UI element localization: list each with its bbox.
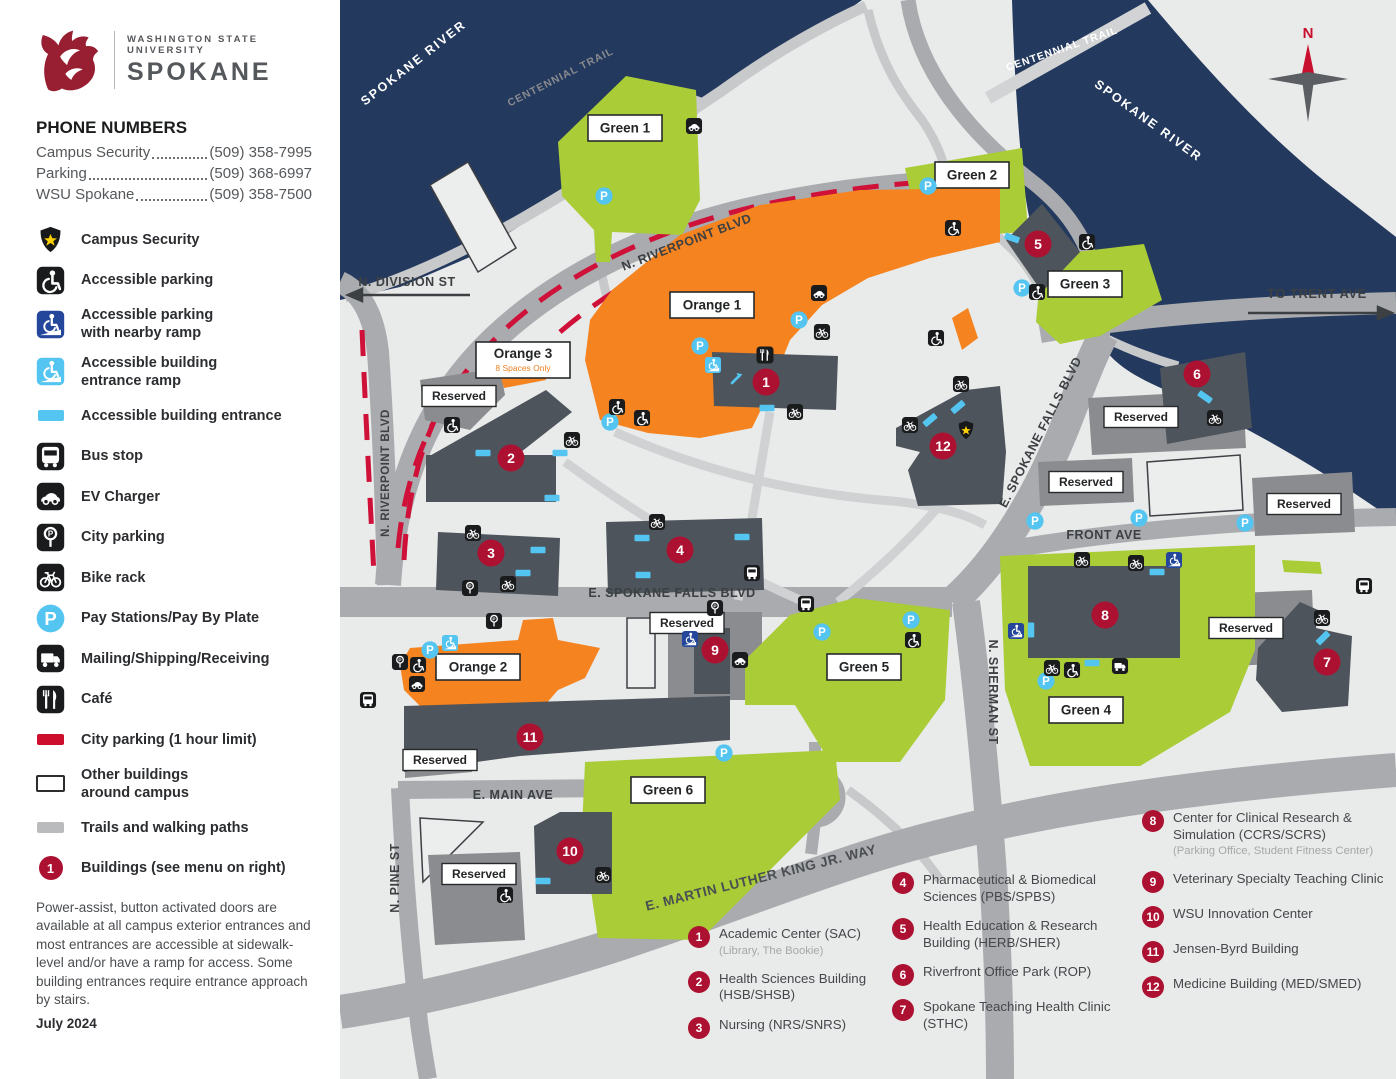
ev-icon: [36, 482, 65, 511]
accessible-icon: [945, 220, 961, 236]
accessible-entrance-icon: [545, 495, 560, 502]
bus-icon: [360, 692, 376, 708]
building-marker-number: 5: [1034, 236, 1042, 252]
legend-item: EV Charger: [36, 482, 322, 511]
legend-item: Bus stop: [36, 442, 322, 471]
wsu-spokane-campus-map-page: WASHINGTON STATE UNIVERSITY SPOKANE PHON…: [0, 0, 1396, 1079]
legend-item: Accessible parkingwith nearby ramp: [36, 306, 322, 342]
phone-entry: Campus Security(509) 358-7995: [36, 142, 312, 163]
building-menu-item: 8Center for Clinical Research & Simulati…: [1142, 810, 1390, 858]
ramp-dark-icon: [1166, 552, 1182, 568]
building-menu-item: 10WSU Innovation Center: [1142, 906, 1390, 928]
building-menu-number: 9: [1142, 871, 1164, 893]
legend-label: Buildings (see menu on right): [81, 859, 286, 877]
building-menu-column-3: 8Center for Clinical Research & Simulati…: [1142, 810, 1390, 998]
accessible-entrance-icon: [1028, 623, 1035, 638]
pay-icon: [1013, 279, 1030, 296]
chip-outline-icon: [36, 769, 65, 798]
accessible-icon: [1064, 662, 1080, 678]
building-menu-item: 7Spokane Teaching Health Clinic (STHC): [892, 999, 1120, 1032]
pay-icon: [595, 187, 612, 204]
logo-institution: WASHINGTON STATE UNIVERSITY: [127, 34, 322, 56]
building-menu-column-2: 4Pharmaceutical & Biomedical Sciences (P…: [892, 872, 1120, 1032]
lot-label: Green 3: [1060, 277, 1111, 292]
accessible-entrance-icon: [536, 878, 551, 885]
phone-number: (509) 358-7500: [209, 184, 312, 205]
legend-label: Accessible buildingentrance ramp: [81, 354, 217, 390]
accessible-icon: [497, 887, 513, 903]
accessible-icon: [634, 410, 650, 426]
entrance-icon: [36, 401, 65, 430]
phone-label: WSU Spokane: [36, 184, 134, 205]
building-menu-name: Pharmaceutical & Biomedical Sciences (PB…: [923, 872, 1120, 905]
building-menu-number: 5: [892, 918, 914, 940]
phone-number: (509) 368-6997: [209, 163, 312, 184]
sidebar: WASHINGTON STATE UNIVERSITY SPOKANE PHON…: [0, 0, 340, 1079]
cafe-icon: [36, 685, 65, 714]
road-label: N. PINE ST: [388, 843, 402, 913]
reserved-label: Reserved: [1114, 410, 1168, 424]
legend-label: Pay Stations/Pay By Plate: [81, 609, 259, 627]
building-menu-name: Academic Center (SAC): [719, 926, 861, 943]
meter-icon: [392, 654, 408, 670]
accessible-entrance-icon: [553, 450, 568, 457]
building-menu-number: 7: [892, 999, 914, 1021]
legend-item: Campus Security: [36, 225, 322, 254]
pay-icon: [813, 623, 830, 640]
badge-icon: [36, 225, 65, 254]
legend-label: Campus Security: [81, 231, 199, 249]
phone-label: Campus Security: [36, 142, 150, 163]
reserved-label: Reserved: [452, 867, 506, 881]
logo-divider: [114, 31, 115, 89]
lot-label: Green 6: [643, 783, 694, 798]
legend-item: Accessible building entrance: [36, 401, 322, 430]
pay-icon: [421, 641, 438, 658]
meter-icon: [36, 523, 65, 552]
legend-item: Accessible parking: [36, 266, 322, 295]
bike-icon: [1074, 552, 1090, 568]
logo-campus: SPOKANE: [127, 58, 322, 87]
lot-label: Orange 3: [494, 346, 553, 361]
building-marker-number: 4: [676, 542, 684, 558]
bike-icon: [36, 563, 65, 592]
bike-icon: [902, 417, 918, 433]
building-marker-number: 7: [1323, 654, 1331, 670]
legend-label: Bike rack: [81, 569, 146, 587]
truck-icon: [36, 644, 65, 673]
building-menu-name: Center for Clinical Research & Simulatio…: [1173, 810, 1390, 843]
ramp-light-icon: [442, 635, 458, 651]
building-menu-number: 10: [1142, 906, 1164, 928]
marker1-icon: 1: [36, 854, 65, 883]
road-label: E. SPOKANE FALLS BLVD: [588, 586, 755, 600]
building-menu-name: Jensen-Byrd Building: [1173, 941, 1299, 958]
building-marker-number: 12: [935, 438, 951, 454]
pay-icon: [715, 744, 732, 761]
reserved-label: Reserved: [1059, 475, 1113, 489]
pay-icon: [691, 337, 708, 354]
building-menu-number: 11: [1142, 941, 1164, 963]
accessible-icon: [609, 399, 625, 415]
building-marker-number: 1: [762, 374, 770, 390]
ev-icon: [409, 676, 425, 692]
legend-label: Accessible parking: [81, 271, 213, 289]
bike-icon: [953, 376, 969, 392]
pay-icon: [36, 604, 65, 633]
legend-label: Mailing/Shipping/Receiving: [81, 650, 270, 668]
building-menu-name: Health Sciences Building (HSB/SHSB): [719, 971, 884, 1004]
building-menu-name: WSU Innovation Center: [1173, 906, 1313, 923]
accessible-entrance-icon: [1150, 569, 1165, 576]
legend-item: Other buildingsaround campus: [36, 766, 322, 802]
map-date: July 2024: [36, 1016, 322, 1031]
lot-label-sub: 8 Spaces Only: [495, 363, 551, 373]
dotted-leader: [136, 199, 207, 201]
bike-icon: [500, 576, 516, 592]
accessible-icon: [1079, 234, 1095, 250]
wsu-cougar-logo-icon: [36, 22, 102, 98]
building-menu-item: 9Veterinary Specialty Teaching Clinic: [1142, 871, 1390, 893]
lot-label: Orange 1: [683, 298, 742, 313]
building-marker-number: 10: [562, 843, 578, 859]
cafe-icon: [757, 347, 774, 364]
building-menu-sub: (Library, The Bookie): [719, 944, 861, 958]
reserved-label: Reserved: [432, 389, 486, 403]
reserved-label: Reserved: [413, 753, 467, 767]
road-label: N. RIVERPOINT BLVD: [380, 409, 392, 537]
lot-label: Orange 2: [449, 660, 508, 675]
lot-label: Green 1: [600, 121, 651, 136]
legend-label: Bus stop: [81, 447, 143, 465]
legend-item: City parking (1 hour limit): [36, 725, 322, 754]
building-menu-item: 5Health Education & Research Building (H…: [892, 918, 1120, 951]
road-label: TO TRENT AVE: [1267, 286, 1367, 301]
accessible-icon: [905, 632, 921, 648]
wsu-logo: WASHINGTON STATE UNIVERSITY SPOKANE: [36, 20, 322, 100]
legend-label: Café: [81, 690, 112, 708]
chip-gray-icon: [36, 813, 65, 842]
building-menu-number: 2: [688, 971, 710, 993]
chip-red-icon: [36, 725, 65, 754]
building-marker-number: 9: [711, 642, 719, 658]
accessible-entrance-icon: [516, 570, 531, 577]
building-menu-item: 12Medicine Building (MED/SMED): [1142, 976, 1390, 998]
building-menu-number: 8: [1142, 810, 1164, 832]
legend-item: City parking: [36, 523, 322, 552]
ev-icon: [811, 285, 827, 301]
phone-entry: WSU Spokane(509) 358-7500: [36, 184, 312, 205]
accessible-entrance-icon: [1085, 660, 1100, 667]
building-menu-number: 3: [688, 1017, 710, 1039]
bus-icon: [1356, 578, 1372, 594]
accessible-icon: [36, 266, 65, 295]
accessibility-note: Power-assist, button activated doors are…: [36, 899, 318, 1010]
legend-item: Café: [36, 685, 322, 714]
legend-label: Other buildingsaround campus: [81, 766, 189, 802]
bike-icon: [595, 867, 611, 883]
reserved-label: Reserved: [1219, 621, 1273, 635]
accessible-icon: [1029, 284, 1045, 300]
campus-map: N SPOKANE RIVERCENTENNIAL TRAILN. RIVERP…: [340, 0, 1396, 1079]
building-menu-number: 1: [688, 926, 710, 948]
building-marker-number: 6: [1193, 366, 1201, 382]
ramp-dark-icon: [36, 310, 65, 339]
road-label: E. MAIN AVE: [473, 788, 554, 802]
pay-icon: [1026, 512, 1043, 529]
accessible-entrance-icon: [476, 450, 491, 457]
building-menu-item: 4Pharmaceutical & Biomedical Sciences (P…: [892, 872, 1120, 905]
bus-icon: [36, 442, 65, 471]
pay-icon: [919, 177, 936, 194]
legend-label: City parking (1 hour limit): [81, 731, 257, 749]
accessible-entrance-icon: [636, 572, 651, 579]
pay-icon: [1236, 514, 1253, 531]
legend-item: Trails and walking paths: [36, 813, 322, 842]
phone-number: (509) 358-7995: [209, 142, 312, 163]
bike-icon: [1314, 610, 1330, 626]
meter-icon: [707, 600, 723, 616]
building-menu-name: Riverfront Office Park (ROP): [923, 964, 1091, 981]
road-label: N. DIVISION ST: [358, 275, 455, 289]
bike-icon: [814, 324, 830, 340]
bike-icon: [787, 404, 803, 420]
building-menu-item: 3Nursing (NRS/SNRS): [688, 1017, 884, 1039]
legend-label: Trails and walking paths: [81, 819, 249, 837]
truck-icon: [1112, 658, 1128, 674]
building-menu-item: 1Academic Center (SAC)(Library, The Book…: [688, 926, 884, 958]
phone-label: Parking: [36, 163, 87, 184]
bike-icon: [564, 432, 580, 448]
phone-list: Campus Security(509) 358-7995Parking(509…: [36, 142, 322, 205]
phone-numbers-heading: PHONE NUMBERS: [36, 118, 322, 138]
reserved-label: Reserved: [660, 616, 714, 630]
legend-item: 1Buildings (see menu on right): [36, 854, 322, 883]
bike-icon: [1044, 660, 1060, 676]
legend-item: Accessible buildingentrance ramp: [36, 354, 322, 390]
building-menu-item: 6Riverfront Office Park (ROP): [892, 964, 1120, 986]
building-menu-item: 2Health Sciences Building (HSB/SHSB): [688, 971, 884, 1004]
bike-icon: [465, 525, 481, 541]
bike-icon: [1128, 555, 1144, 571]
building-menu-column-1: 1Academic Center (SAC)(Library, The Book…: [688, 926, 884, 1039]
lot-label: Green 4: [1061, 703, 1112, 718]
bus-icon: [744, 565, 760, 581]
ramp-dark-icon: [682, 631, 698, 647]
building-menu-name: Veterinary Specialty Teaching Clinic: [1173, 871, 1383, 888]
ramp-light-icon: [36, 357, 65, 386]
compass-n-label: N: [1303, 25, 1314, 42]
legend-label: EV Charger: [81, 488, 160, 506]
building-marker-number: 3: [487, 545, 495, 561]
pay-icon: [601, 413, 618, 430]
road-label: FRONT AVE: [1066, 528, 1141, 542]
accessible-entrance-icon: [760, 405, 775, 412]
building-menu-name: Health Education & Research Building (HE…: [923, 918, 1120, 951]
accessible-icon: [444, 417, 460, 433]
accessible-icon: [928, 330, 944, 346]
building-2b: [426, 455, 556, 502]
ev-icon: [732, 652, 748, 668]
lot-label: Green 2: [947, 168, 997, 183]
ramp-dark-icon: [1008, 623, 1024, 639]
building-marker-number: 11: [523, 729, 538, 745]
building-menu-number: 12: [1142, 976, 1164, 998]
lot-label: Green 5: [839, 660, 890, 675]
pay-icon: [902, 611, 919, 628]
building-menu-number: 6: [892, 964, 914, 986]
legend-label: Accessible building entrance: [81, 407, 282, 425]
legend-item: Mailing/Shipping/Receiving: [36, 644, 322, 673]
building-menu-name: Spokane Teaching Health Clinic (STHC): [923, 999, 1120, 1032]
ev-icon: [686, 118, 702, 134]
ramp-light-icon: [705, 357, 721, 373]
building-menu-number: 4: [892, 872, 914, 894]
accessible-entrance-icon: [635, 535, 650, 542]
pay-icon: [1130, 509, 1147, 526]
building-menu-name: Nursing (NRS/SNRS): [719, 1017, 846, 1034]
legend-label: City parking: [81, 528, 165, 546]
building-menu-name: Medicine Building (MED/SMED): [1173, 976, 1361, 993]
legend-item: Pay Stations/Pay By Plate: [36, 604, 322, 633]
reserved-label: Reserved: [1277, 497, 1331, 511]
bike-icon: [1207, 410, 1223, 426]
map-legend: Campus SecurityAccessible parkingAccessi…: [36, 225, 322, 883]
accessible-entrance-icon: [735, 534, 750, 541]
dotted-leader: [152, 157, 207, 159]
pay-icon: [790, 311, 807, 328]
legend-item: Bike rack: [36, 563, 322, 592]
building-menu-item: 11Jensen-Byrd Building: [1142, 941, 1390, 963]
bike-icon: [649, 514, 665, 530]
bus-icon: [798, 596, 814, 612]
building-marker-number: 2: [507, 450, 515, 466]
meter-icon: [462, 580, 478, 596]
building-menu-sub: (Parking Office, Student Fitness Center): [1173, 844, 1390, 858]
dotted-leader: [89, 178, 208, 180]
building-marker-number: 8: [1101, 607, 1109, 623]
road-label: N. SHERMAN ST: [986, 639, 1000, 744]
legend-label: Accessible parkingwith nearby ramp: [81, 306, 213, 342]
accessible-icon: [410, 657, 426, 673]
accessible-entrance-icon: [531, 547, 546, 554]
meter-icon: [486, 613, 502, 629]
phone-entry: Parking(509) 368-6997: [36, 163, 312, 184]
